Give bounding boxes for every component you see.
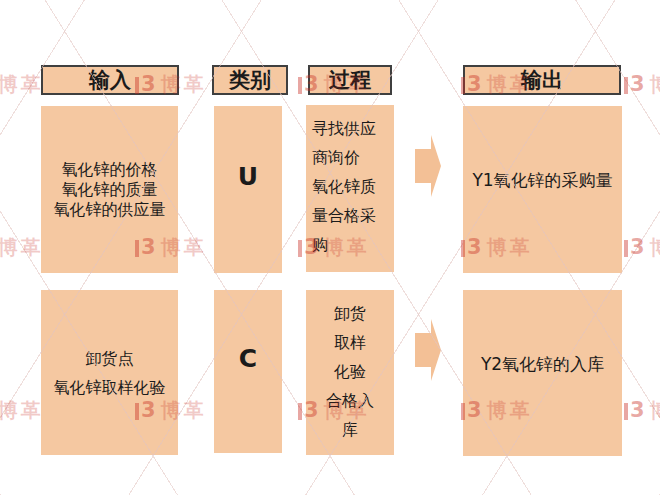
output-text: Y2氧化锌的入库 <box>481 353 604 376</box>
process-line: 购 <box>312 230 394 259</box>
input-line: 卸货点 <box>86 344 134 373</box>
process-line: 寻找供应 <box>312 114 394 143</box>
process-line: 取样 <box>306 328 394 357</box>
sipoc-diagram: 输入 类别 过程 输出 氧化锌的价格 氧化锌的质量 氧化锌的供应量 U 寻找供应… <box>0 0 660 495</box>
watermark-brand-text: 博革 <box>650 397 660 424</box>
watermark-brand-text: 博革 <box>0 397 44 424</box>
input-box-row1: 氧化锌的价格 氧化锌的质量 氧化锌的供应量 <box>41 106 178 273</box>
boge-watermark: 3 博革 <box>0 397 44 424</box>
boge-watermark: 3 博革 <box>624 234 660 261</box>
input-line: 氧化锌的价格 <box>62 160 158 180</box>
boge-watermark: 3 博革 <box>0 71 44 98</box>
process-line: 氧化锌质 <box>312 172 394 201</box>
column-header-output: 输出 <box>463 65 621 95</box>
output-text: Y1氧化锌的采购量 <box>472 169 612 192</box>
process-line: 卸货 <box>306 299 394 328</box>
boge-logo-bar <box>624 77 628 94</box>
input-box-row2: 卸货点 氧化锌取样化验 <box>41 290 178 455</box>
input-line: 氧化锌的质量 <box>62 180 158 200</box>
boge-logo-bar <box>298 77 302 94</box>
boge-watermark: 3 博革 <box>624 397 660 424</box>
process-box-row1: 寻找供应 商询价 氧化锌质 量合格采 购 <box>306 105 394 272</box>
right-arrow-icon <box>415 319 441 381</box>
boge-logo-glyph: 3 <box>630 401 645 420</box>
boge-logo-bar <box>298 403 302 420</box>
category-box-u: U <box>214 106 282 273</box>
watermark-brand-text: 博革 <box>650 71 660 98</box>
watermark-brand-text: 博革 <box>0 234 44 261</box>
output-box-row2: Y2氧化锌的入库 <box>463 290 622 456</box>
process-line: 库 <box>306 415 394 444</box>
process-box-row2: 卸货 取样 化验 合格入 库 <box>306 290 394 455</box>
column-header-category: 类别 <box>212 65 288 95</box>
boge-logo-bar <box>624 240 628 257</box>
boge-watermark: 3 博革 <box>0 234 44 261</box>
process-line: 合格入 <box>306 386 394 415</box>
boge-logo-glyph: 3 <box>630 238 645 257</box>
boge-logo-icon: 3 <box>624 238 645 257</box>
column-header-input: 输入 <box>41 65 179 95</box>
watermark-brand-text: 博革 <box>0 71 44 98</box>
boge-logo-icon: 3 <box>624 75 645 94</box>
watermark-brand-text: 博革 <box>650 234 660 261</box>
boge-watermark: 3 博革 <box>624 71 660 98</box>
input-line: 氧化锌的供应量 <box>54 200 166 220</box>
boge-logo-icon: 3 <box>624 401 645 420</box>
process-text: 卸货 取样 化验 合格入 库 <box>306 290 394 444</box>
boge-logo-glyph: 3 <box>630 75 645 94</box>
process-text: 寻找供应 商询价 氧化锌质 量合格采 购 <box>306 105 394 259</box>
input-line: 氧化锌取样化验 <box>54 373 166 402</box>
process-line: 化验 <box>306 357 394 386</box>
right-arrow-icon <box>415 135 441 197</box>
column-header-process: 过程 <box>308 65 392 95</box>
boge-logo-bar <box>624 403 628 420</box>
boge-logo-bar <box>298 240 302 257</box>
category-box-c: C <box>214 290 282 453</box>
process-line: 量合格采 <box>312 201 394 230</box>
output-box-row1: Y1氧化锌的采购量 <box>463 106 622 273</box>
process-line: 商询价 <box>312 143 394 172</box>
